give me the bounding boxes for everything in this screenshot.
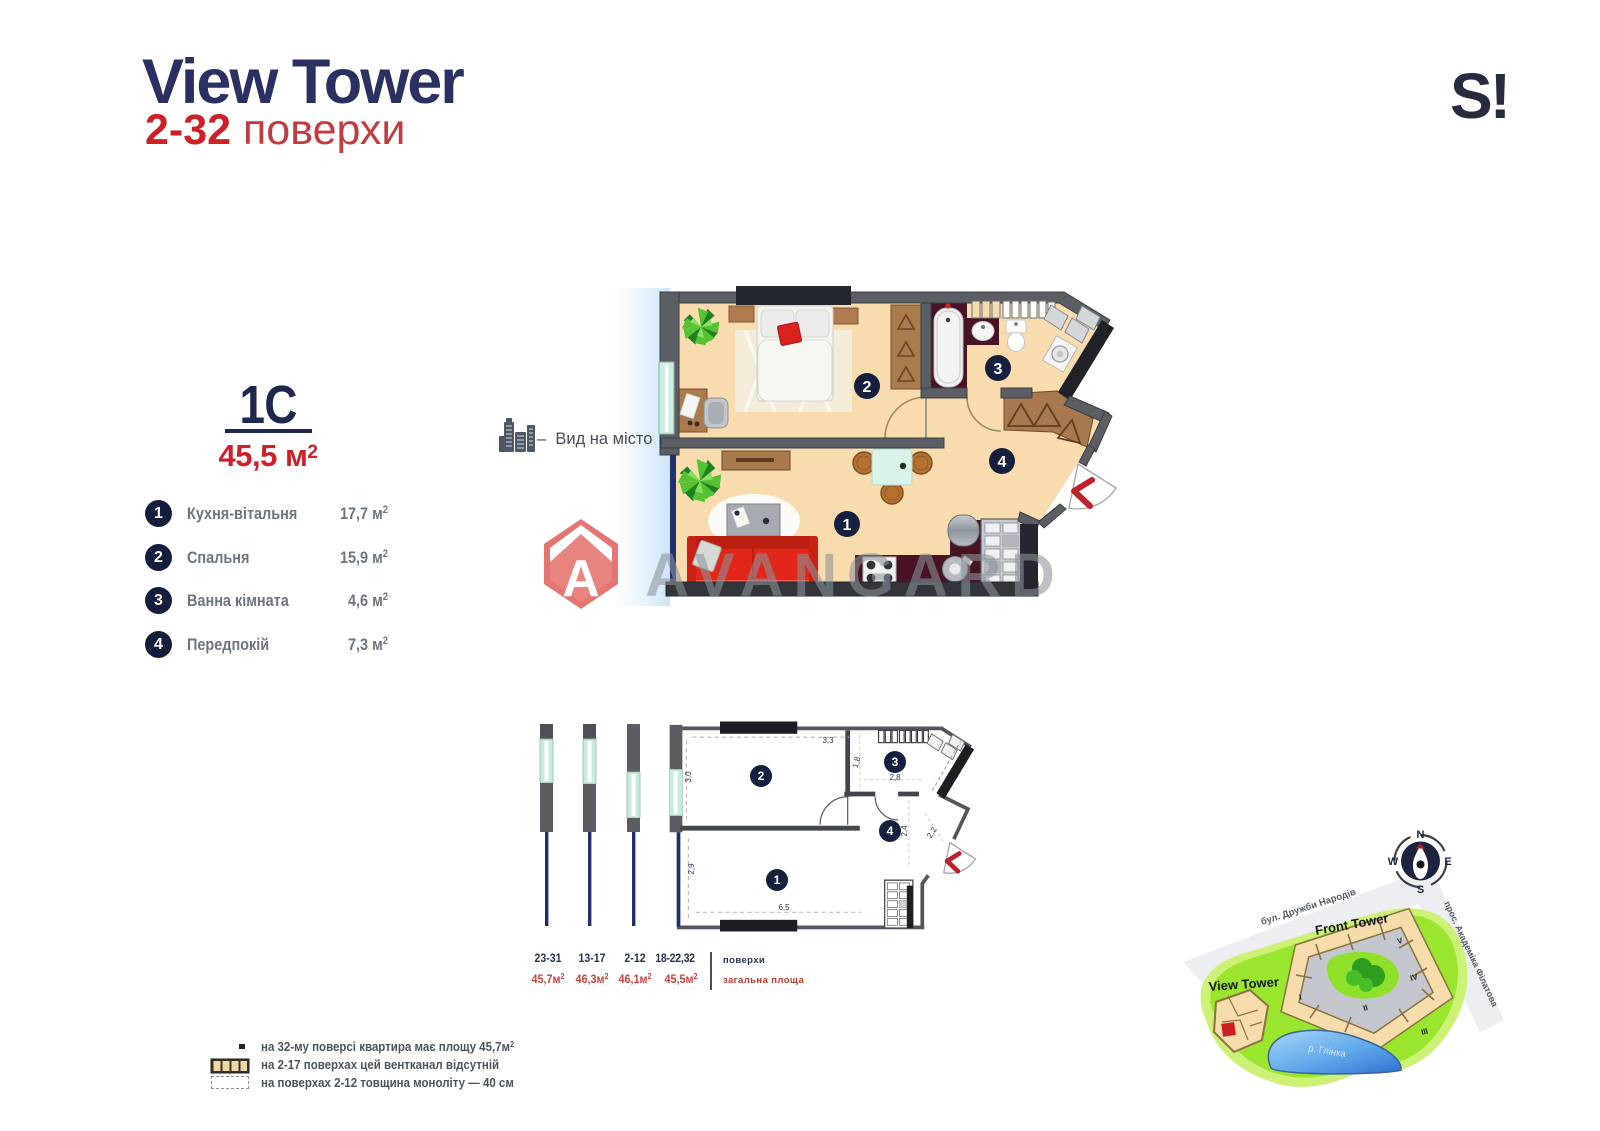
- svg-text:3: 3: [994, 361, 1003, 378]
- svg-text:2: 2: [863, 379, 872, 396]
- svg-text:2,4: 2,4: [900, 825, 909, 837]
- svg-text:3,0: 3,0: [684, 771, 693, 783]
- svg-text:W: W: [1388, 856, 1399, 868]
- svg-text:1: 1: [774, 873, 781, 887]
- svg-text:S: S: [1417, 884, 1424, 896]
- svg-text:4: 4: [887, 824, 894, 838]
- svg-text:1: 1: [843, 517, 852, 534]
- svg-text:2,9: 2,9: [687, 863, 696, 875]
- svg-text:6,5: 6,5: [778, 903, 790, 912]
- svg-text:2,8: 2,8: [889, 773, 901, 782]
- svg-text:4: 4: [998, 454, 1007, 471]
- svg-text:2: 2: [758, 769, 765, 783]
- svg-text:3: 3: [892, 755, 899, 769]
- svg-text:E: E: [1444, 856, 1451, 868]
- svg-text:N: N: [1417, 829, 1425, 841]
- svg-text:A: A: [562, 550, 600, 608]
- svg-text:3,3: 3,3: [822, 736, 834, 745]
